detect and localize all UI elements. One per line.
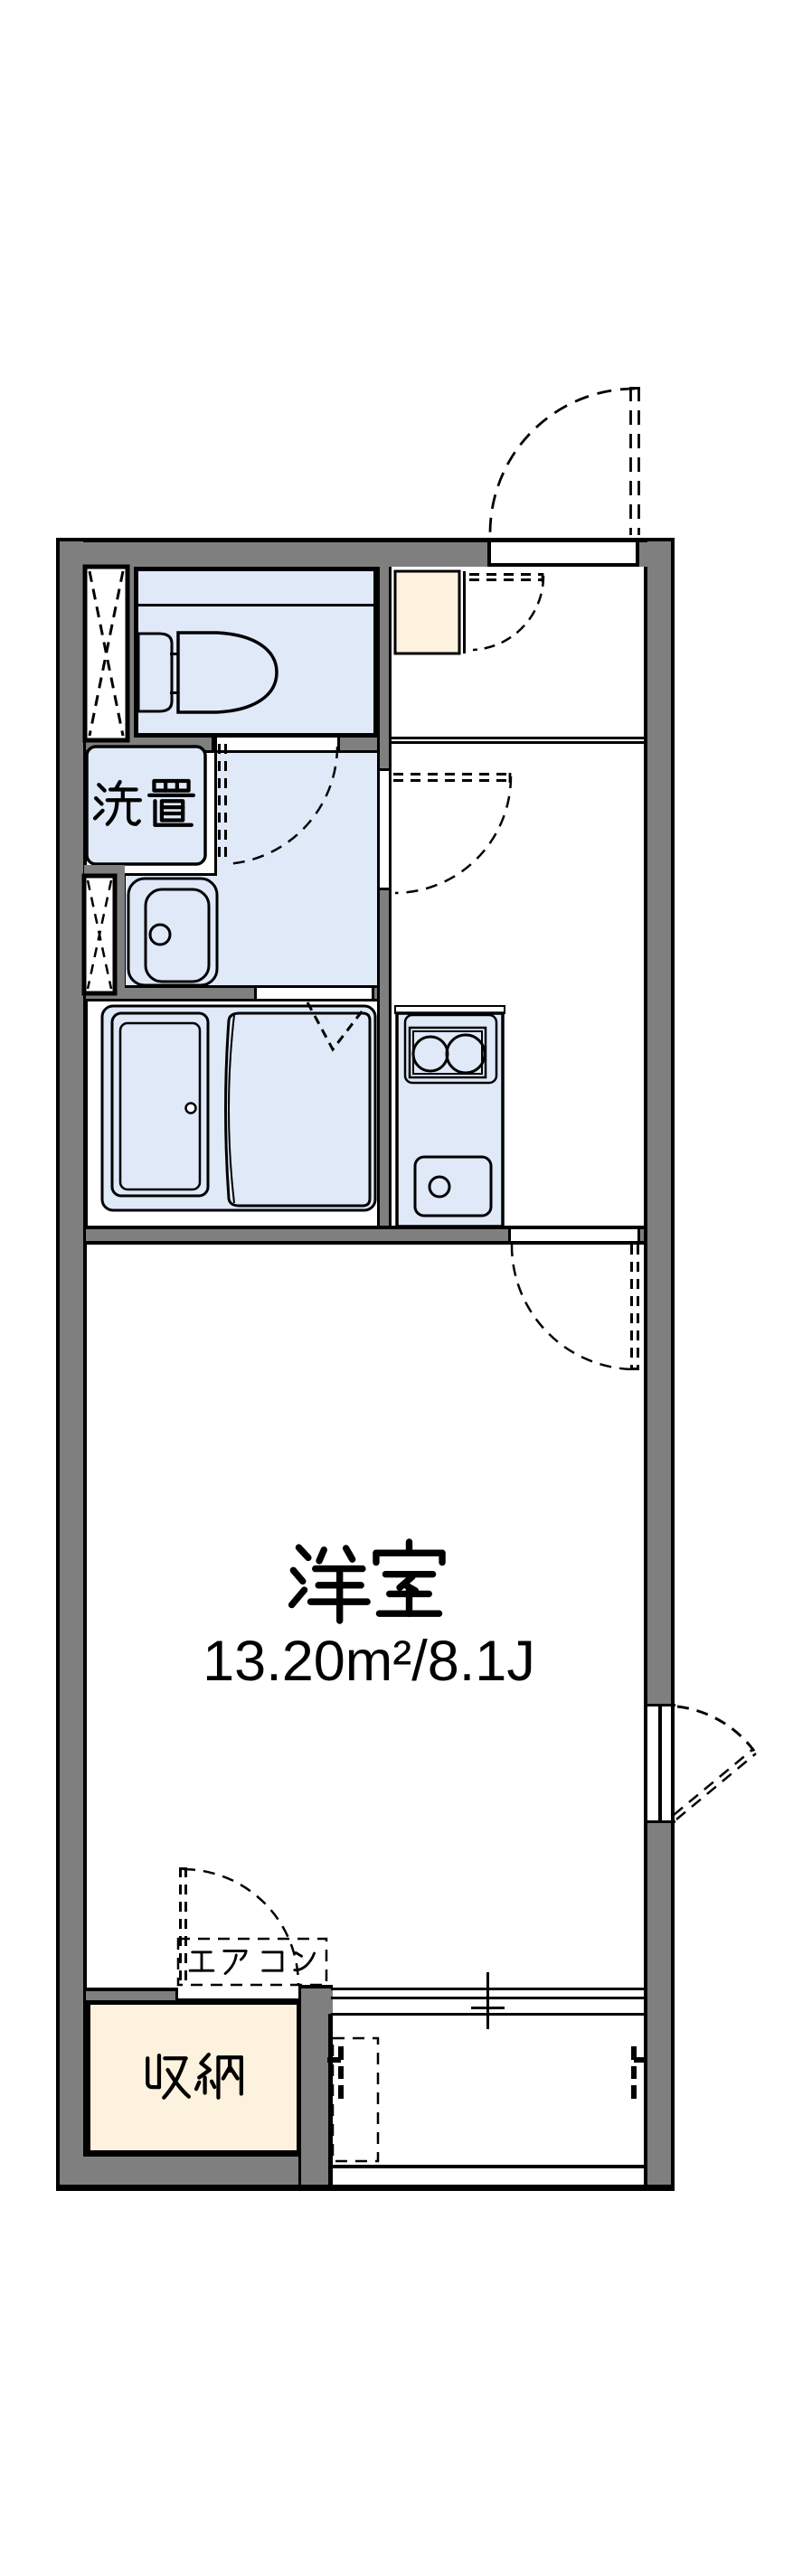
svg-text:13.20m²/8.1J: 13.20m²/8.1J xyxy=(203,1630,535,1693)
